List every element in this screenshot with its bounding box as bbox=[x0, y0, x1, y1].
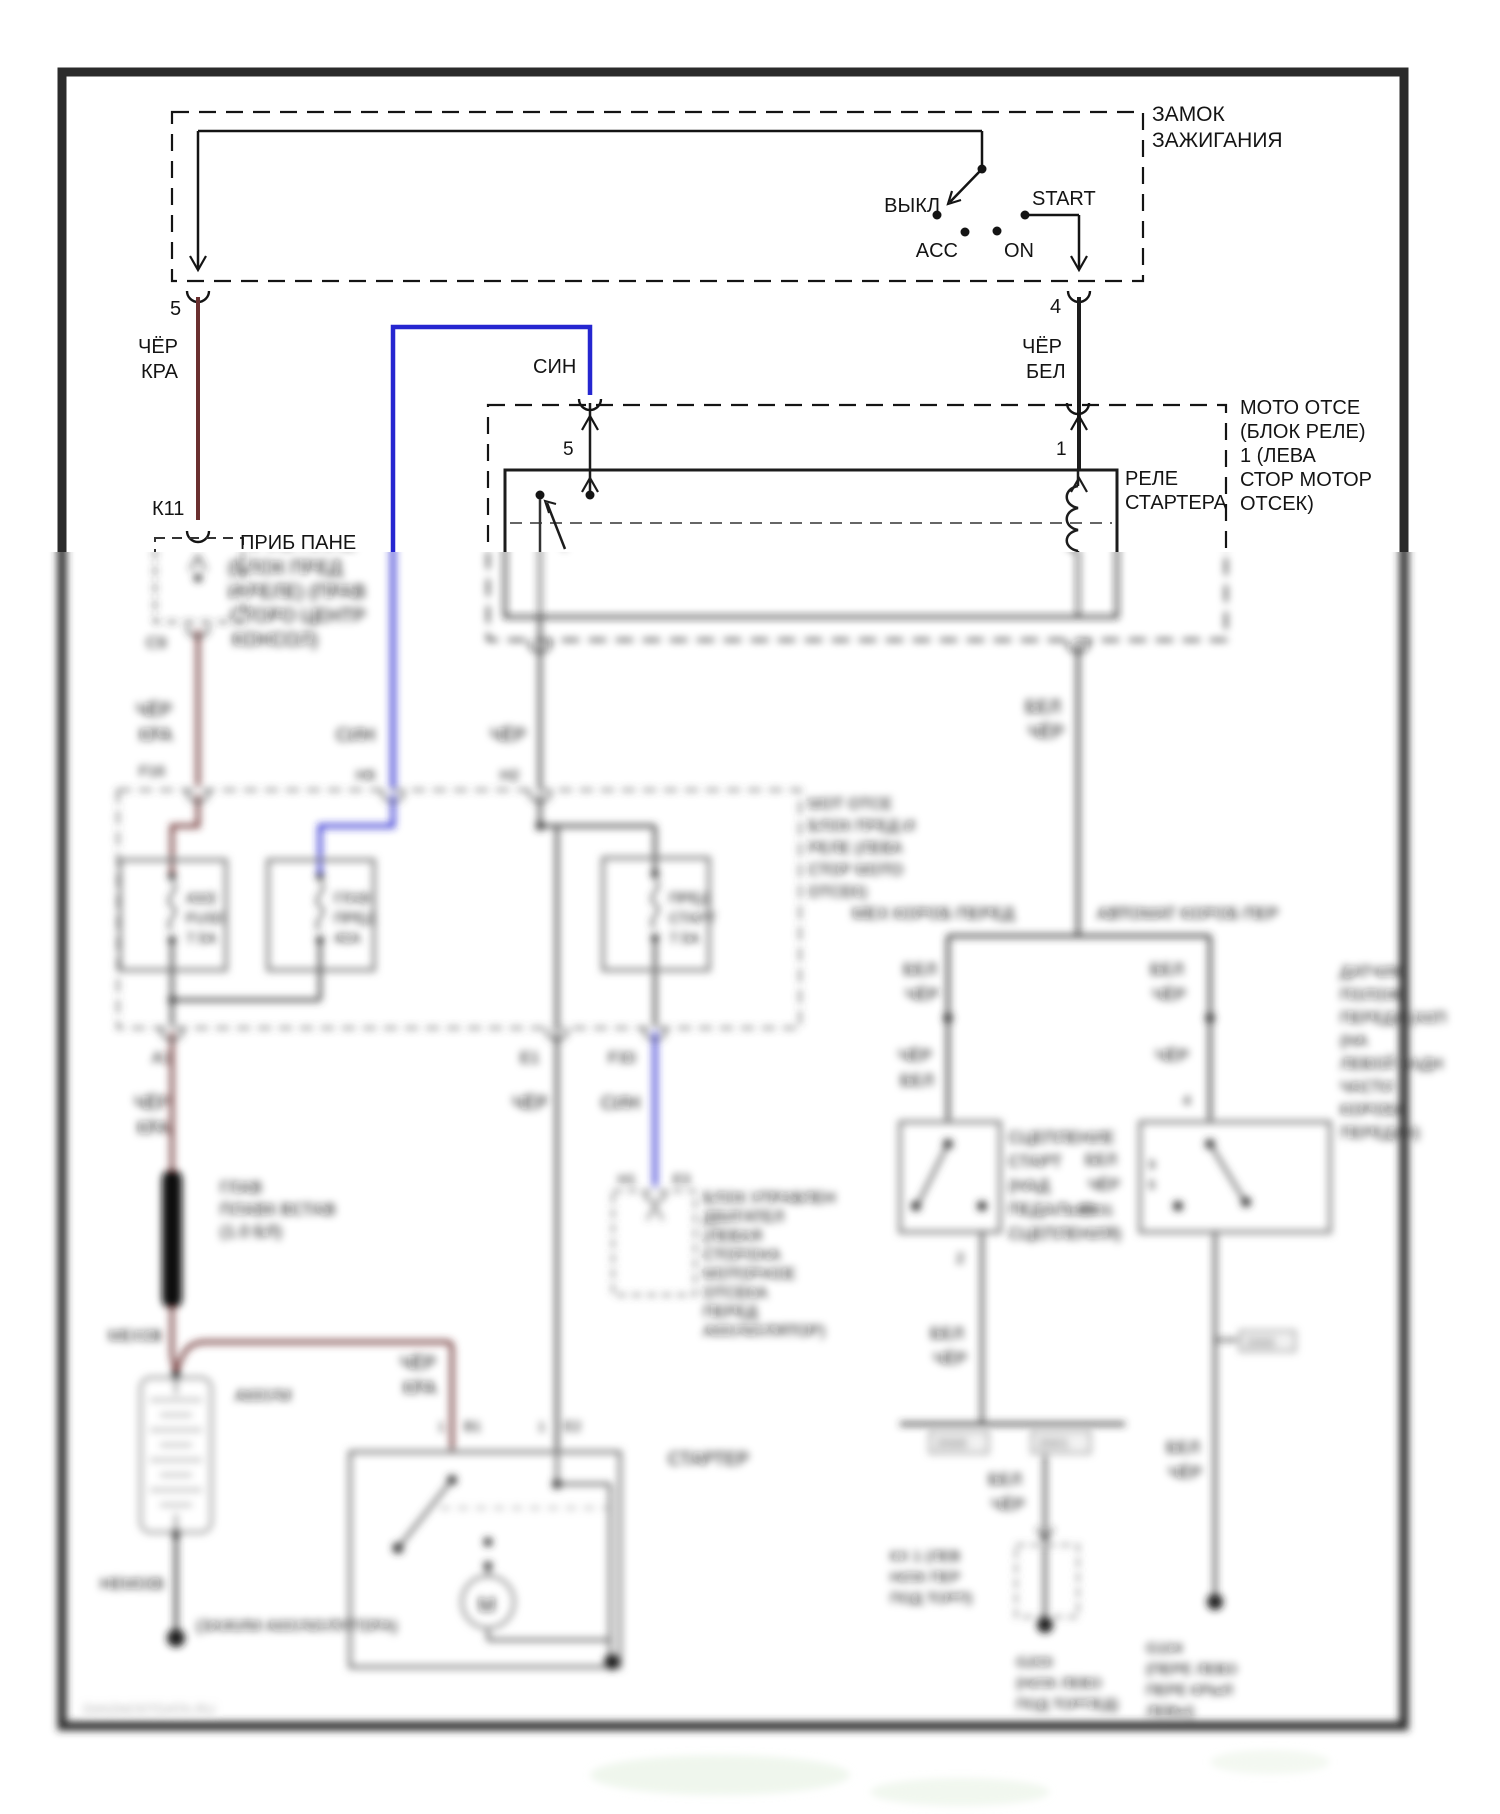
sharp-region bbox=[62, 72, 1446, 1806]
blurred-region bbox=[62, 72, 1446, 1806]
wiring-diagram-page: ЗАМОКЗАЖИГАНИЯВЫКЛACCONSTART45ЧЁРКРАЧЁРБ… bbox=[0, 0, 1500, 1814]
wiring-diagram: ЗАМОКЗАЖИГАНИЯВЫКЛACCONSTART45ЧЁРКРАЧЁРБ… bbox=[0, 0, 1500, 1814]
